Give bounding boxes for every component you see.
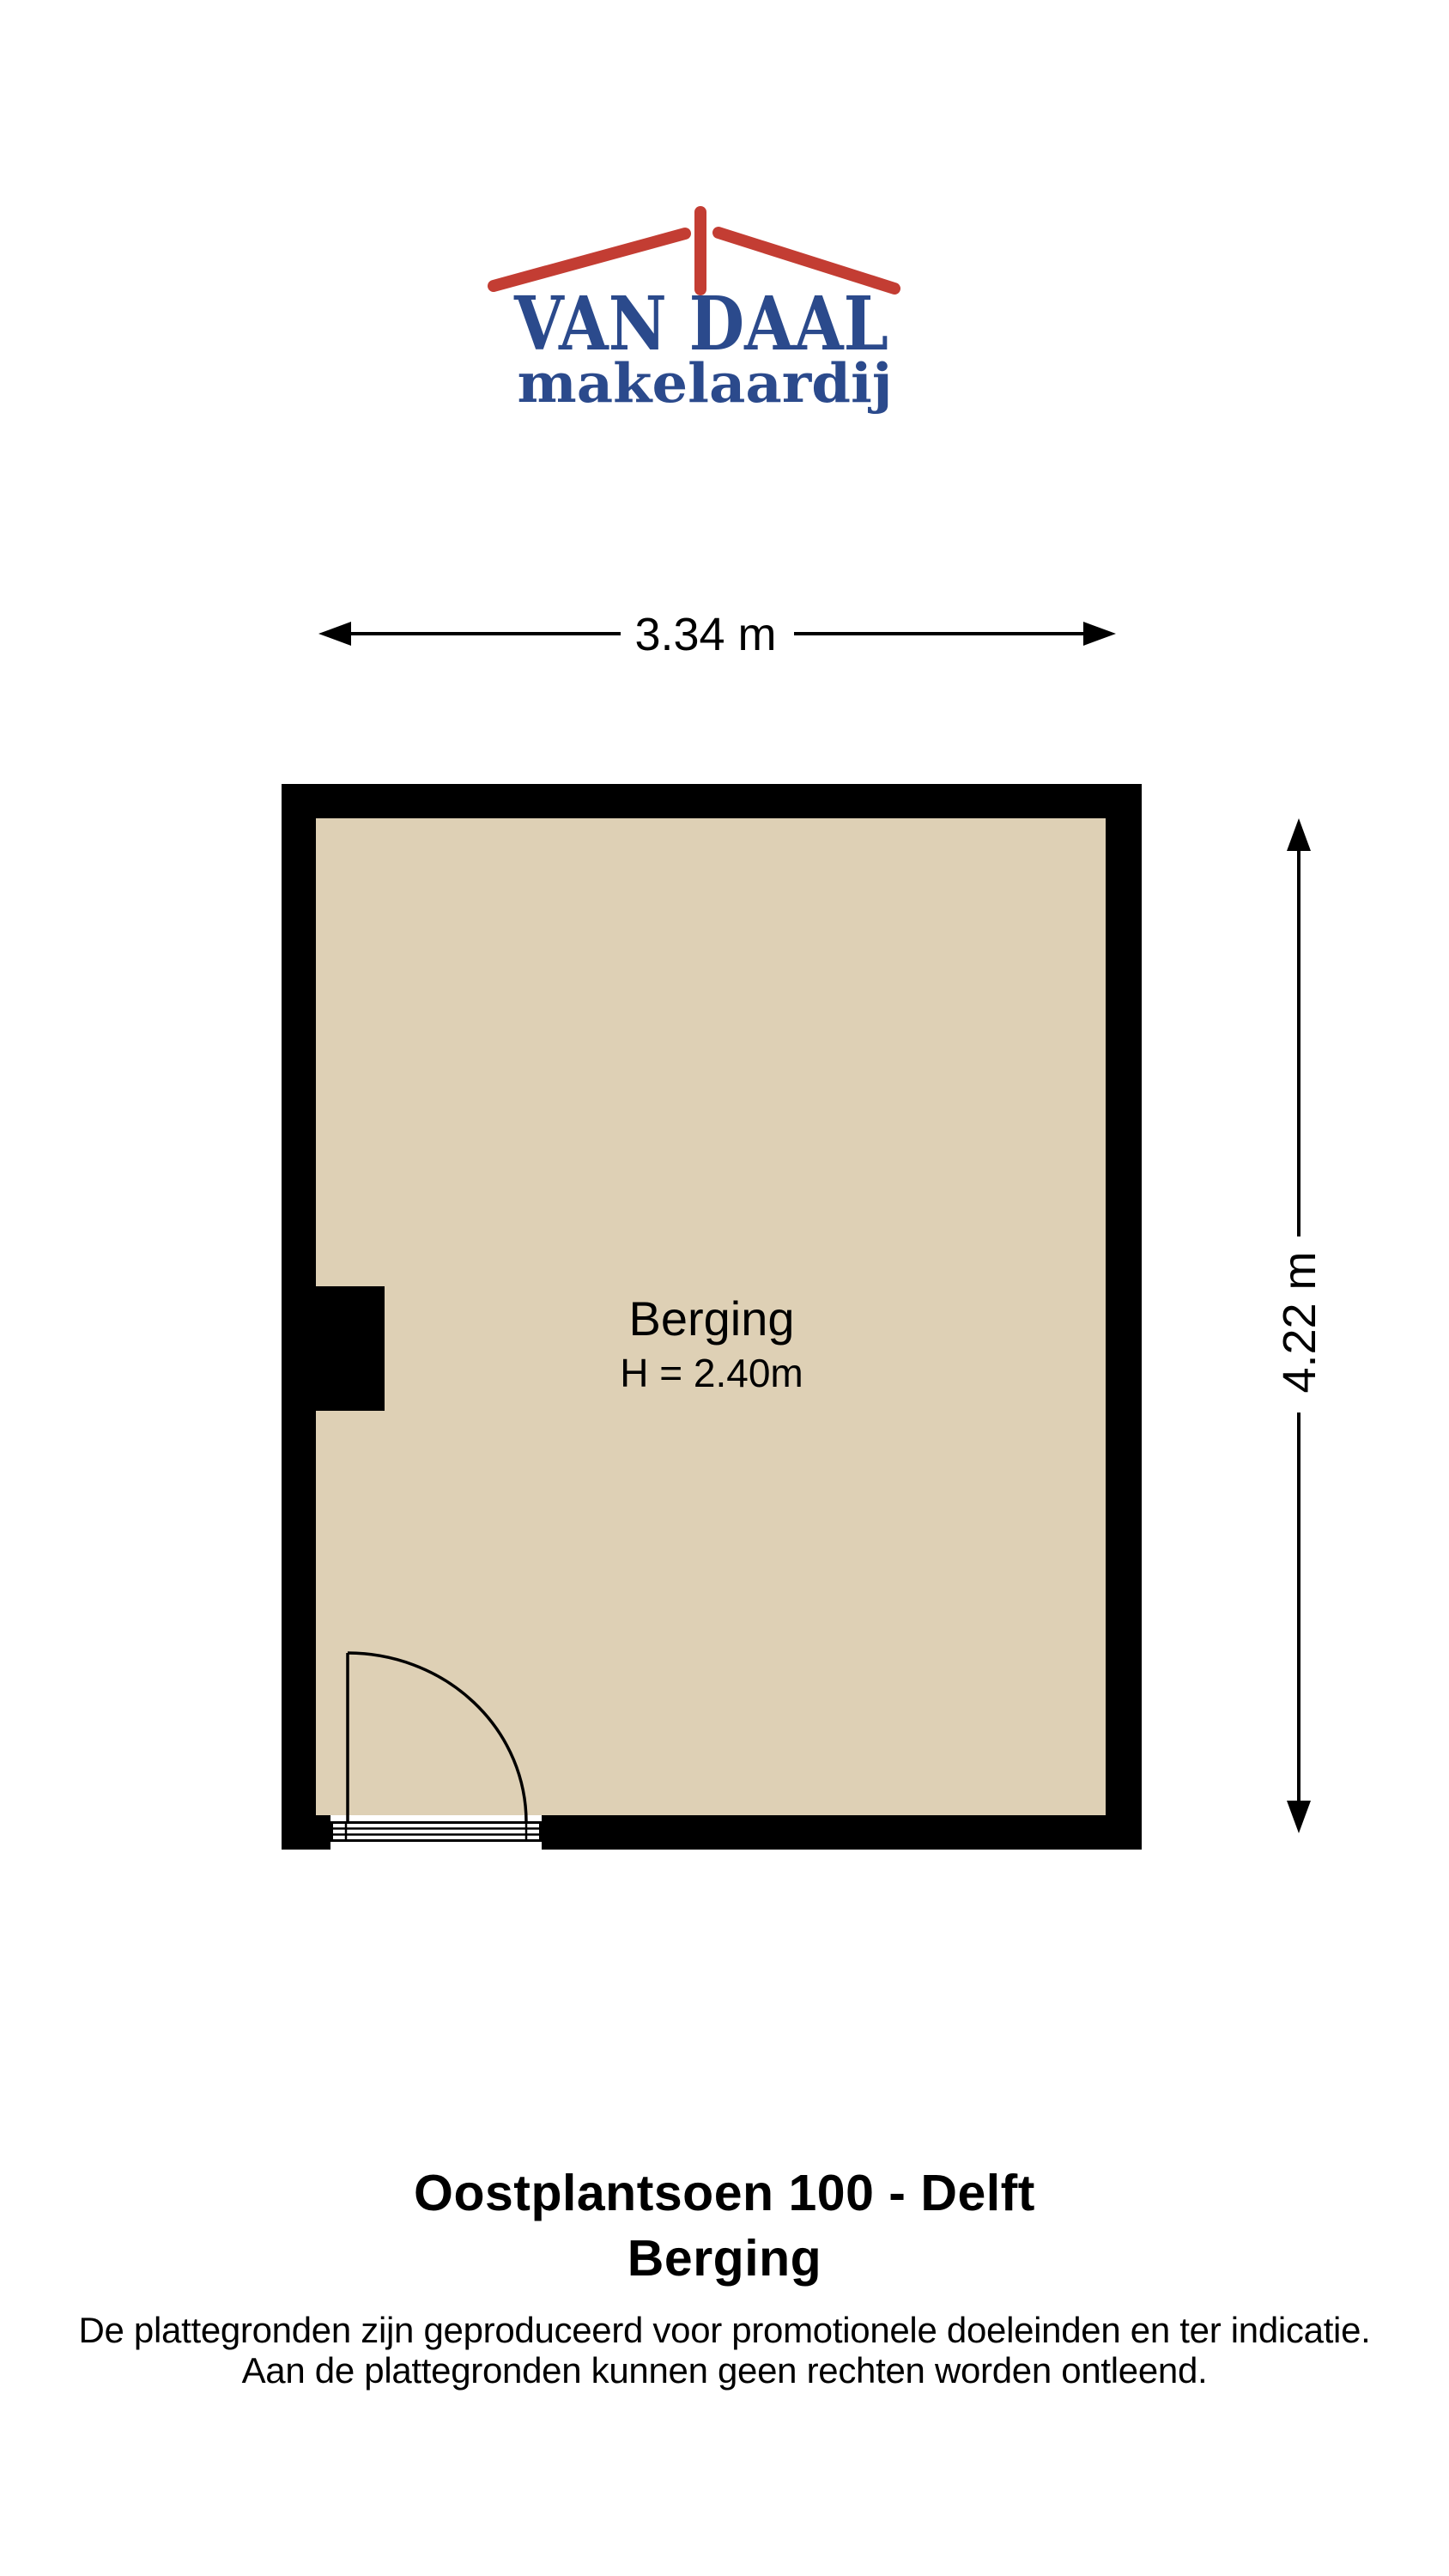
arrow-down-icon (1287, 1801, 1311, 1833)
width-dimension-label: 3.34 m (634, 609, 776, 660)
roof-icon (494, 212, 894, 289)
property-title-block: Oostplantsoen 100 - Delft Berging (0, 2160, 1449, 2291)
height-dimension: 4.22 m (1269, 811, 1329, 1846)
arrow-left-icon (318, 622, 351, 646)
disclaimer-line-1: De plattegronden zijn geproduceerd voor … (0, 2310, 1449, 2350)
width-dimension: 3.34 m (282, 601, 1144, 670)
property-plan-name: Berging (0, 2226, 1449, 2291)
disclaimer: De plattegronden zijn geproduceerd voor … (0, 2310, 1449, 2391)
arrow-up-icon (1287, 818, 1311, 851)
height-dimension-label: 4.22 m (1274, 1251, 1325, 1393)
room-label: Berging H = 2.40m (282, 1293, 1142, 1394)
brand-subtitle: makelaardij (518, 351, 893, 415)
brand-logo: VAN DAAL makelaardij (464, 202, 944, 442)
door-threshold (331, 1823, 541, 1841)
floorplan-page: VAN DAAL makelaardij 3.34 m Berging H = … (0, 0, 1449, 2576)
property-address: Oostplantsoen 100 - Delft (0, 2160, 1449, 2226)
arrow-right-icon (1083, 622, 1116, 646)
room-name: Berging (282, 1293, 1142, 1345)
room-ceiling-height: H = 2.40m (282, 1352, 1142, 1394)
disclaimer-line-2: Aan de plattegronden kunnen geen rechten… (0, 2350, 1449, 2391)
